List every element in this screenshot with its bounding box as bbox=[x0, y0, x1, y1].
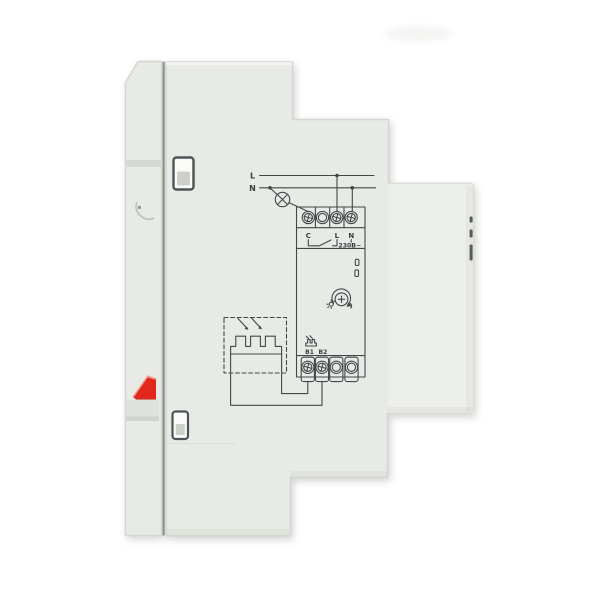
bottom-shade-front bbox=[167, 529, 289, 536]
vent-icon bbox=[470, 217, 473, 223]
supply-neutral-label: N bbox=[249, 184, 256, 193]
vent-icon bbox=[470, 230, 473, 238]
product-photo: L N bbox=[0, 0, 600, 600]
terminal-label-l: L bbox=[335, 232, 340, 240]
voltage-label: 230В~ bbox=[338, 243, 361, 250]
clip-step-shadow-top bbox=[126, 160, 163, 167]
terminal-screw-b2-icon bbox=[316, 361, 328, 373]
terminal-screw-c-icon bbox=[302, 211, 314, 223]
lever-recess-shadow bbox=[126, 417, 159, 422]
sensor-terminal-label-b1: В1 bbox=[305, 349, 314, 356]
terminal-screw-l-icon bbox=[331, 211, 343, 223]
terminal-label-n: N bbox=[348, 232, 354, 240]
din-clip-strip bbox=[126, 62, 162, 536]
vent-icon bbox=[470, 245, 473, 261]
device-photo-svg: L N bbox=[0, 0, 600, 600]
terminal-label-c: C bbox=[306, 232, 311, 240]
bottom-shade-mid bbox=[291, 471, 388, 478]
clip-pin-dot bbox=[138, 206, 141, 209]
terminal-screw-n-icon bbox=[345, 211, 357, 223]
mount-slot-top-inner bbox=[177, 172, 190, 186]
background-smudge bbox=[384, 26, 452, 42]
terminal-screw-b1-icon bbox=[302, 361, 314, 373]
sensor-terminal-label-b2: В2 bbox=[319, 349, 328, 356]
mount-slot-bottom-inner bbox=[176, 424, 185, 435]
bottom-shade-right bbox=[388, 407, 472, 414]
top-highlight bbox=[166, 62, 292, 65]
right-section-tone bbox=[389, 184, 474, 414]
supply-live-label: L bbox=[250, 171, 255, 180]
